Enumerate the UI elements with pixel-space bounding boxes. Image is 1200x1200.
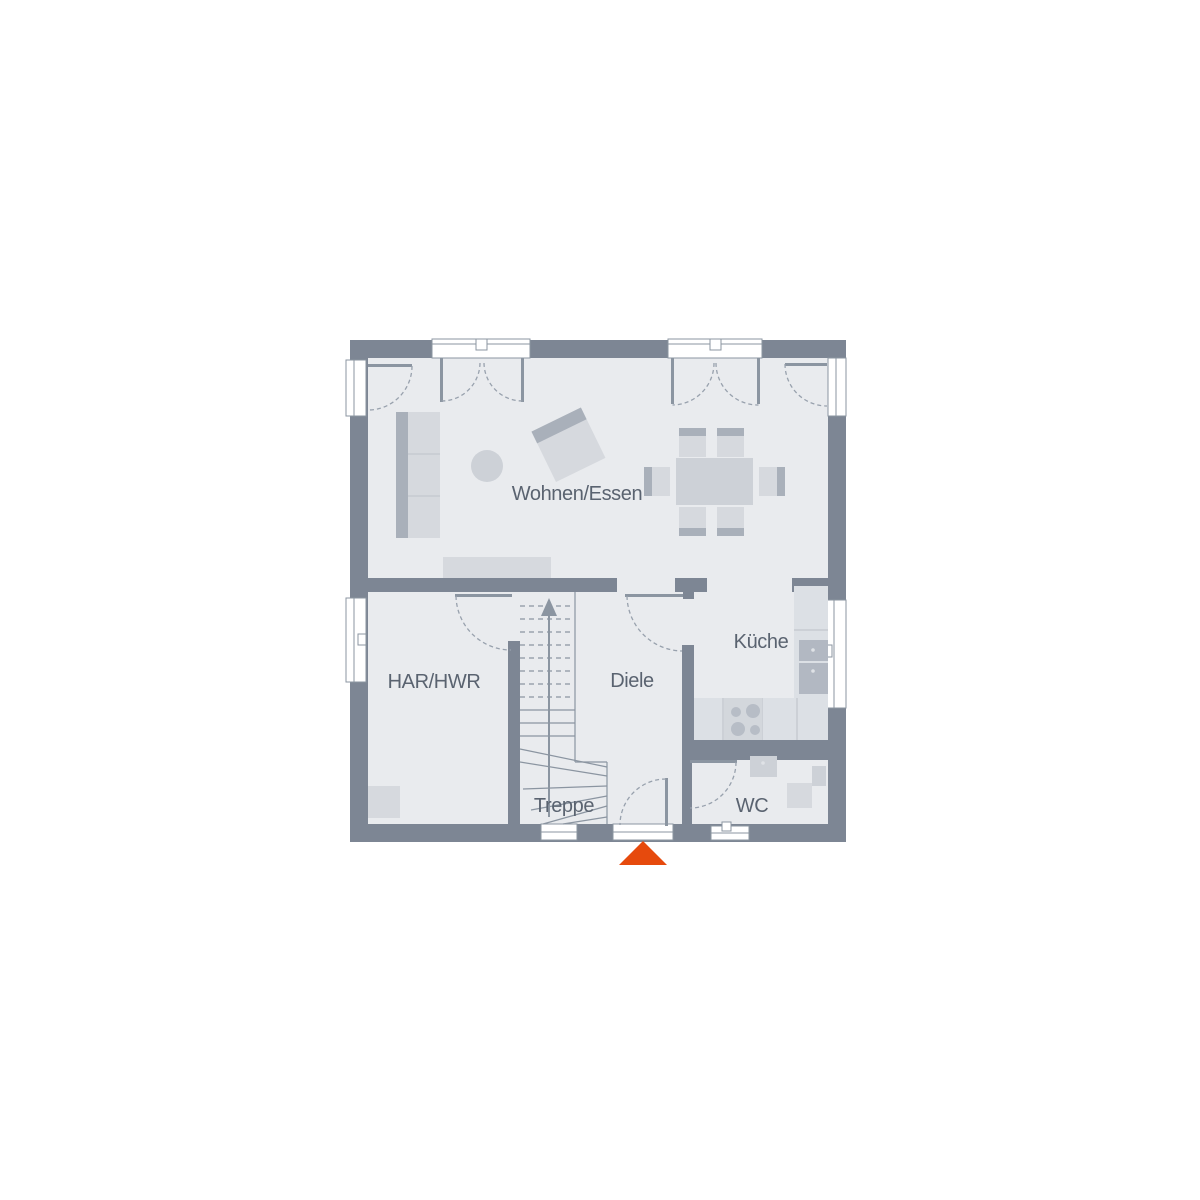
floorplan-drawing: Wohnen/Essen HAR/HWR Diele Küche Treppe … [0, 0, 1200, 1200]
room-label-har-hwr: HAR/HWR [388, 671, 481, 693]
room-label-wc: WC [736, 795, 769, 817]
sideboard [443, 557, 551, 578]
dining-table [676, 458, 753, 505]
window-har-hwr [346, 598, 366, 682]
room-label-wohnen-essen: Wohnen/Essen [512, 483, 642, 505]
cooktop-icon [724, 698, 762, 740]
oven-icon [799, 663, 828, 694]
toilet-icon [787, 783, 812, 808]
floorplan-canvas: Wohnen/Essen HAR/HWR Diele Küche Treppe … [0, 0, 1200, 1200]
dining-chair [717, 507, 744, 536]
utility-equipment [368, 786, 400, 818]
entrance-triangle-icon [619, 841, 667, 865]
room-label-kueche: Küche [734, 631, 789, 653]
dining-chair [717, 428, 744, 457]
dining-chair [759, 467, 785, 496]
coffee-table [471, 450, 503, 482]
toilet-cistern [812, 766, 826, 786]
dining-chair [644, 467, 670, 496]
room-label-treppe: Treppe [534, 795, 595, 817]
dining-chair [679, 507, 706, 536]
sofa [396, 412, 440, 538]
sink-icon [750, 756, 777, 777]
oven-icon [799, 640, 828, 661]
window-stairs [541, 824, 577, 840]
dining-chair [679, 428, 706, 457]
room-label-diele: Diele [610, 670, 654, 692]
